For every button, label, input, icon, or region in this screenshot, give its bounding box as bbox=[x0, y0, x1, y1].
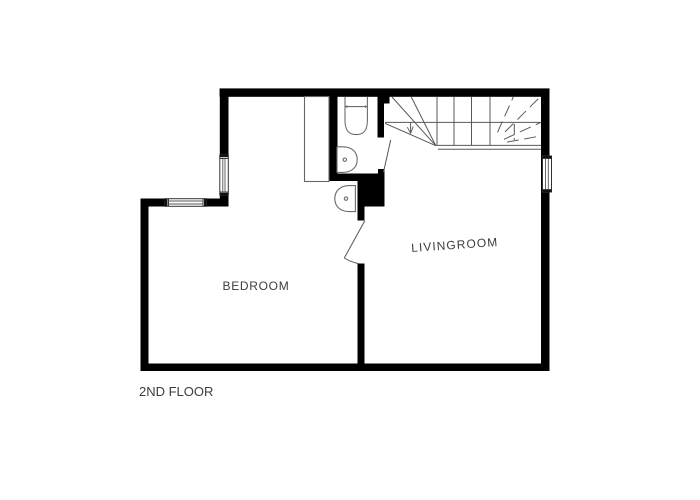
svg-text:BEDROOM: BEDROOM bbox=[223, 279, 290, 293]
svg-text:2ND FLOOR: 2ND FLOOR bbox=[139, 384, 213, 399]
